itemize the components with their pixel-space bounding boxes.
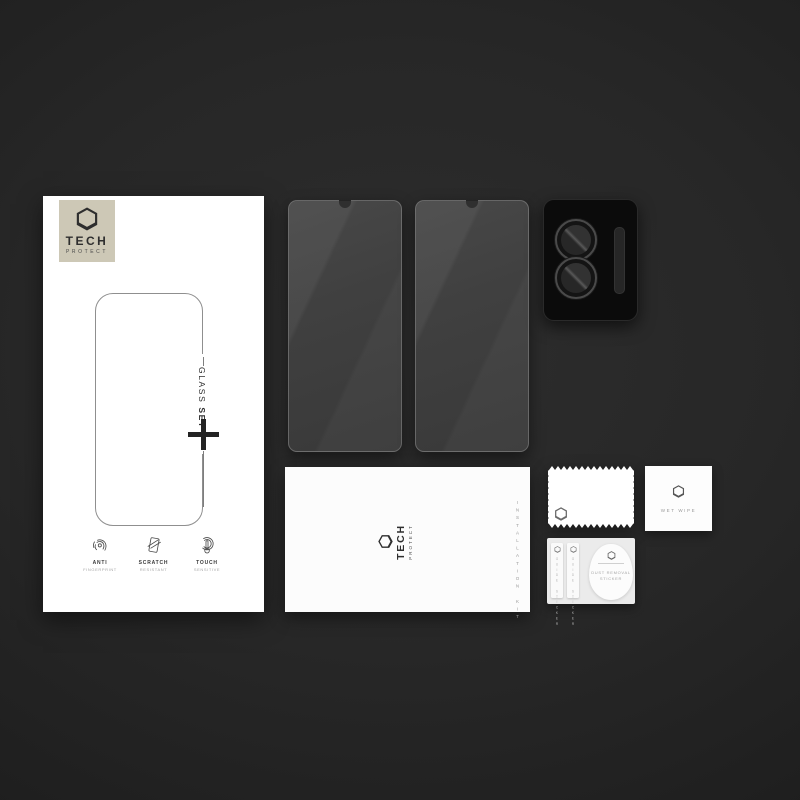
label-tick-line [203, 357, 204, 366]
scratch-icon [143, 534, 165, 556]
hexagon-logo-icon [570, 546, 577, 553]
microfiber-cloth [548, 465, 634, 531]
wet-wipe-label: WET WIPE [661, 508, 696, 513]
flash-slot [614, 227, 625, 294]
divider-line [598, 563, 624, 564]
feature-subtitle: SENSITIVE [194, 567, 220, 572]
hexagon-logo-icon [378, 535, 393, 550]
label-tick-line [203, 451, 204, 507]
brand-subname: PROTECT [408, 524, 413, 560]
hexagon-logo-icon [672, 485, 685, 498]
lens-glass [561, 263, 591, 293]
installation-kit-label: INSTALLATION KIT [515, 500, 520, 590]
guide-sticker-strip-2: GUIDE STICKER [567, 543, 579, 598]
glass-sheen [416, 201, 528, 451]
feature-title: TOUCH [196, 560, 218, 566]
hexagon-logo-icon [607, 551, 616, 560]
feature-title: SCRATCH [139, 560, 169, 566]
tempered-glass-panel-2 [415, 200, 529, 452]
feature-list: ANTI FINGERPRINT SCRATCH RESISTANT [76, 534, 231, 572]
feature-anti-fingerprint: ANTI FINGERPRINT [76, 534, 124, 572]
brand-name: TECH [395, 524, 407, 560]
installation-kit-envelope: TECH PROTECT INSTALLATION KIT [285, 467, 530, 612]
glass-sheen [289, 201, 401, 451]
lens-glass [561, 225, 591, 255]
guide-sticker-strip-1: GUIDE STICKER [551, 543, 563, 598]
brand-name: TECH [66, 234, 109, 248]
camera-lens-protector [543, 199, 638, 321]
dust-removal-sticker: DUST REMOVAL STICKER [589, 544, 633, 600]
feature-subtitle: RESISTANT [140, 567, 168, 572]
fingerprint-icon [89, 534, 111, 556]
hexagon-logo-icon [554, 507, 568, 521]
strip-label: GUIDE STICKER [555, 557, 559, 627]
glass-word: GLASS [197, 367, 207, 403]
dust-removal-label-line1: DUST REMOVAL [591, 570, 631, 575]
lens-ring-1 [555, 219, 597, 261]
wet-wipe-sachet: WET WIPE [645, 466, 712, 531]
lens-ring-2 [555, 257, 597, 299]
dust-removal-label-line2: STICKER [600, 576, 622, 581]
brand-logo-square: TECH PROTECT [59, 200, 115, 262]
feature-subtitle: FINGERPRINT [83, 567, 117, 572]
plus-icon [201, 419, 206, 450]
feature-scratch-resistant: SCRATCH RESISTANT [130, 534, 178, 572]
touch-icon [196, 534, 218, 556]
phone-outline-drawing [95, 293, 203, 526]
sticker-card: GUIDE STICKER GUIDE STICKER DUST REMOVAL… [547, 538, 635, 604]
product-photo-scene: TECH PROTECT GLASS SET [0, 0, 800, 800]
feature-touch-sensitive: TOUCH SENSITIVE [183, 534, 231, 572]
glass-set-label: GLASS SET [197, 367, 207, 421]
hexagon-logo-icon [554, 546, 561, 553]
tempered-glass-panel-1 [288, 200, 402, 452]
brand-subname: PROTECT [66, 249, 108, 255]
brand-logo-rotated: TECH PROTECT [377, 512, 413, 572]
feature-title: ANTI [93, 560, 108, 566]
strip-label: GUIDE STICKER [571, 557, 575, 627]
glass-set-box: TECH PROTECT GLASS SET [43, 196, 264, 612]
hexagon-logo-icon [75, 207, 99, 231]
